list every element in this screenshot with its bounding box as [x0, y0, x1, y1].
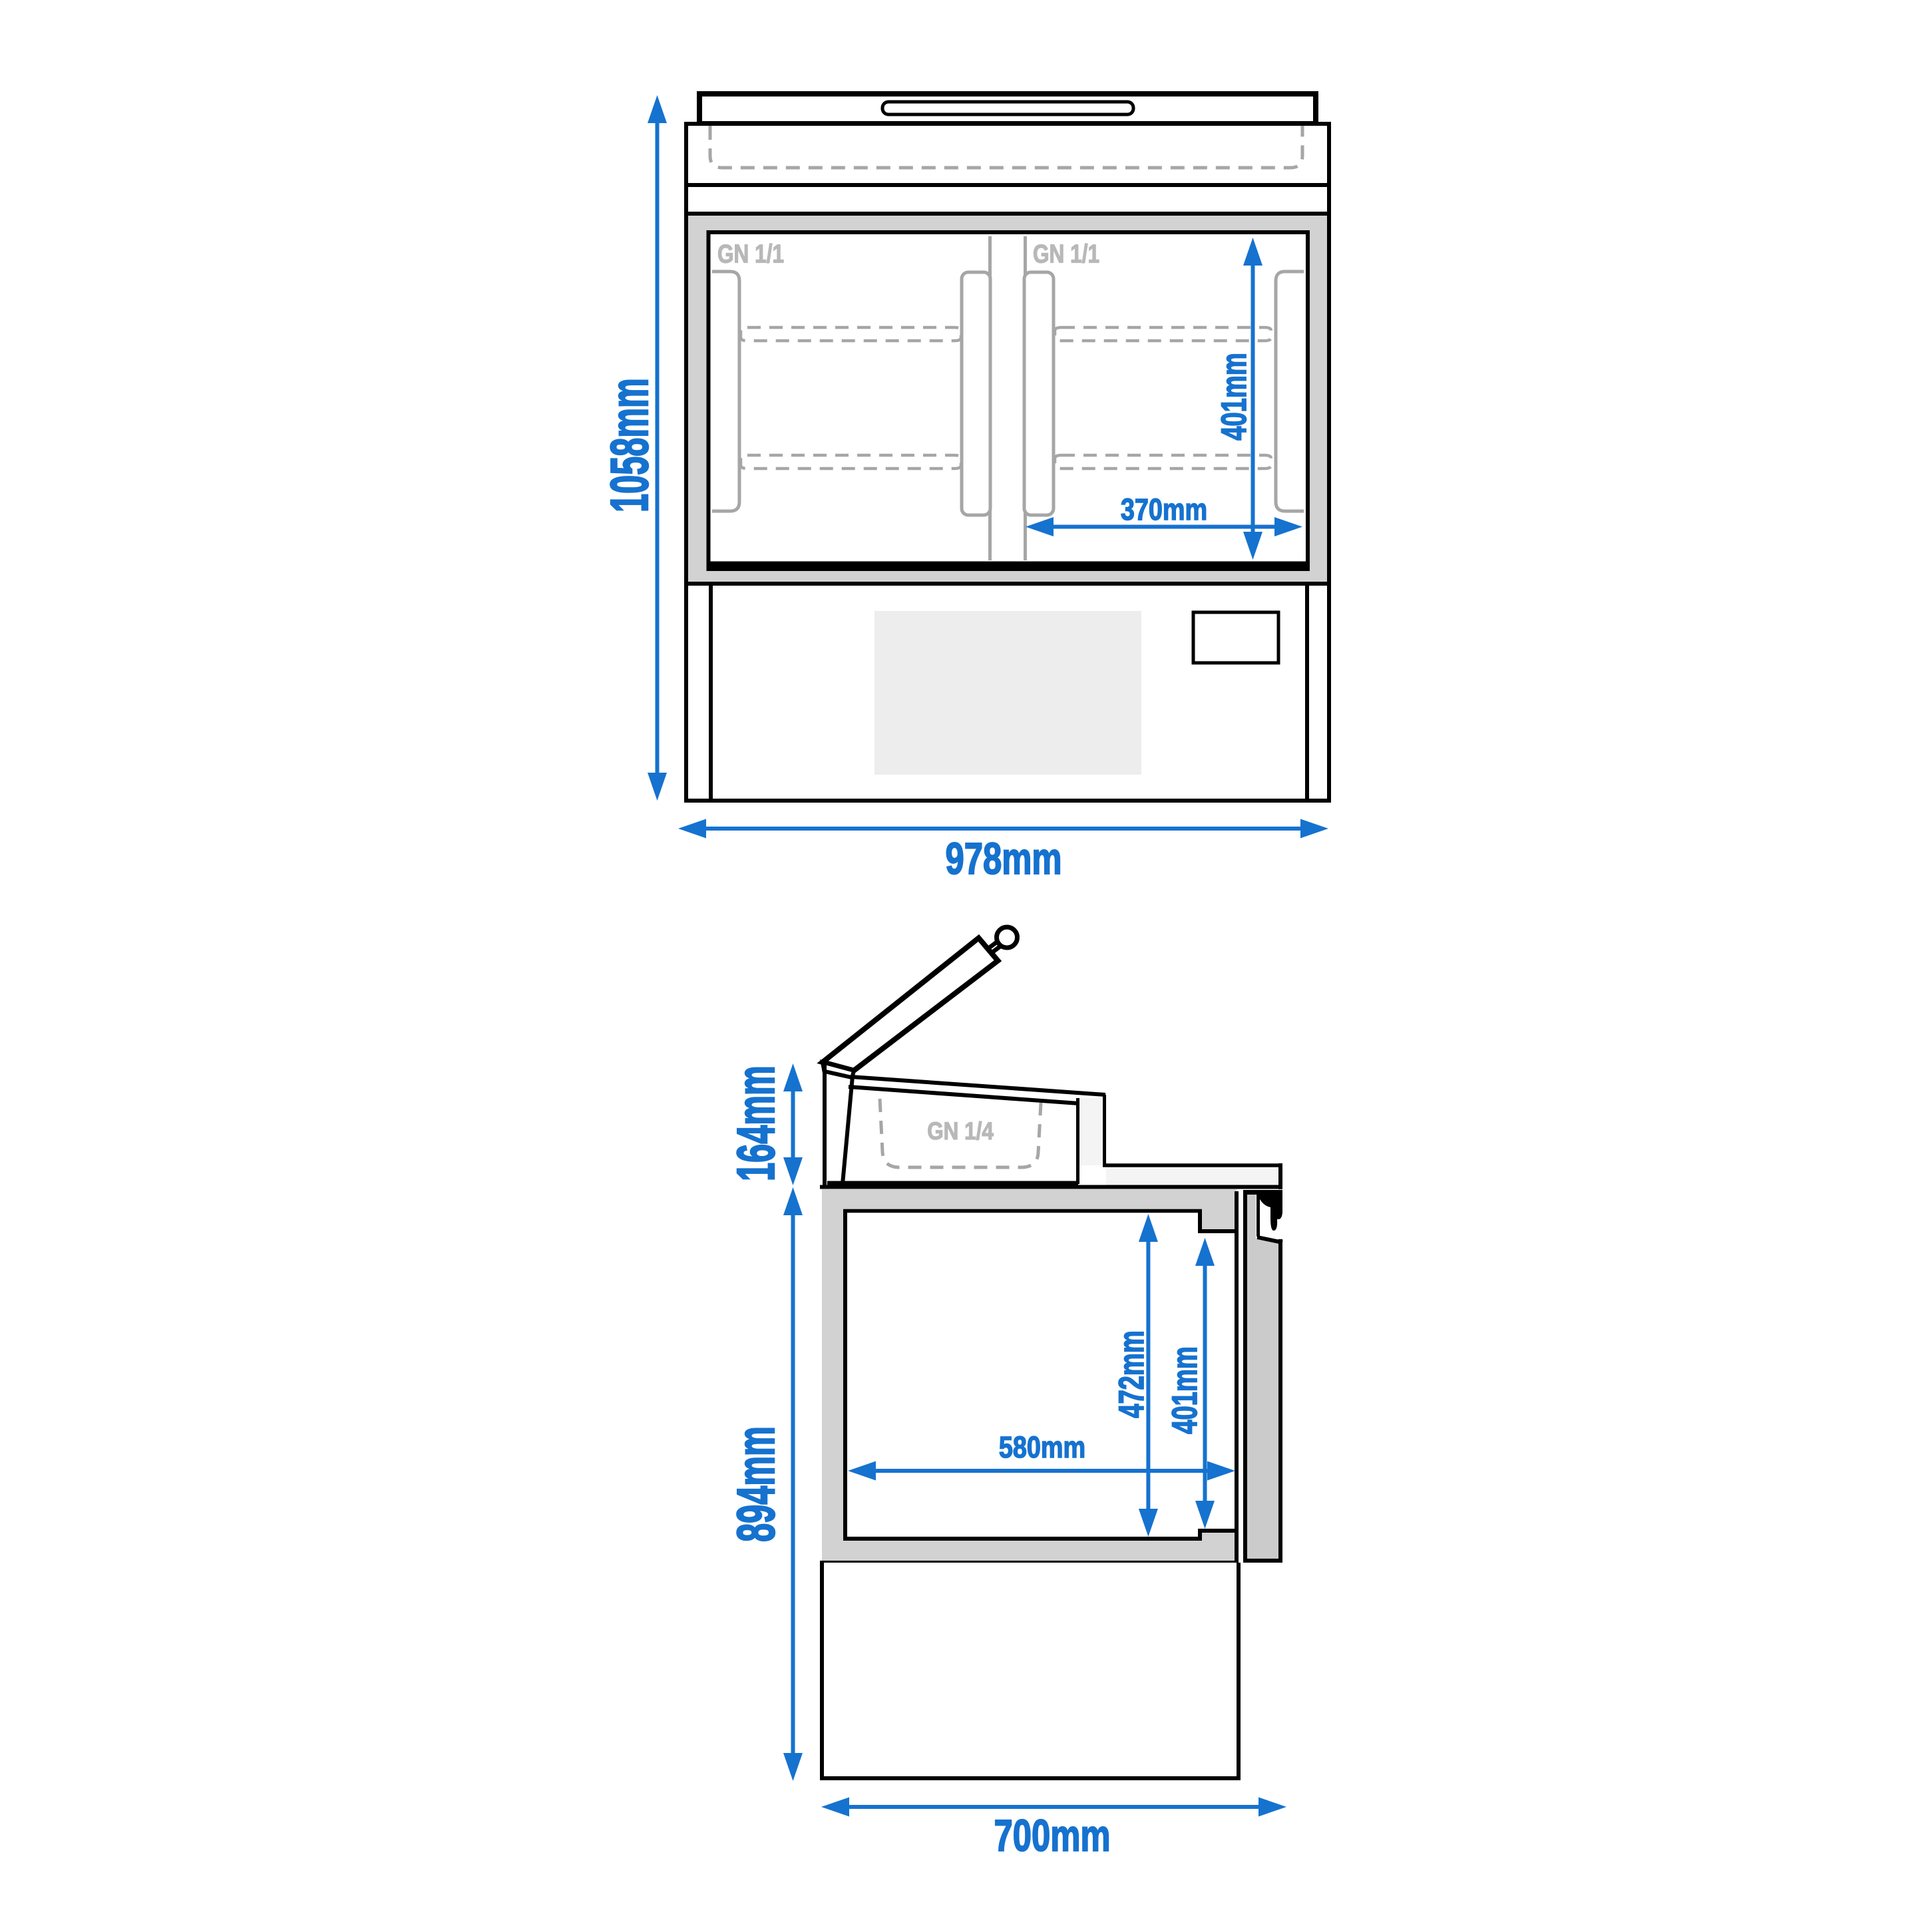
svg-text:472mm: 472mm: [1111, 1330, 1151, 1418]
svg-text:GN 1/1: GN 1/1: [1033, 239, 1099, 268]
svg-text:164mm: 164mm: [726, 1065, 786, 1181]
svg-text:370mm: 370mm: [1121, 492, 1207, 526]
svg-text:401mm: 401mm: [1165, 1346, 1205, 1434]
svg-text:401mm: 401mm: [1214, 353, 1254, 441]
svg-text:GN 1/4: GN 1/4: [927, 1118, 994, 1145]
svg-text:1058mm: 1058mm: [600, 378, 660, 512]
svg-text:580mm: 580mm: [999, 1430, 1085, 1464]
svg-text:894mm: 894mm: [726, 1426, 786, 1542]
svg-text:978mm: 978mm: [945, 833, 1062, 884]
svg-text:GN 1/1: GN 1/1: [717, 239, 784, 268]
svg-text:700mm: 700mm: [994, 1810, 1110, 1861]
